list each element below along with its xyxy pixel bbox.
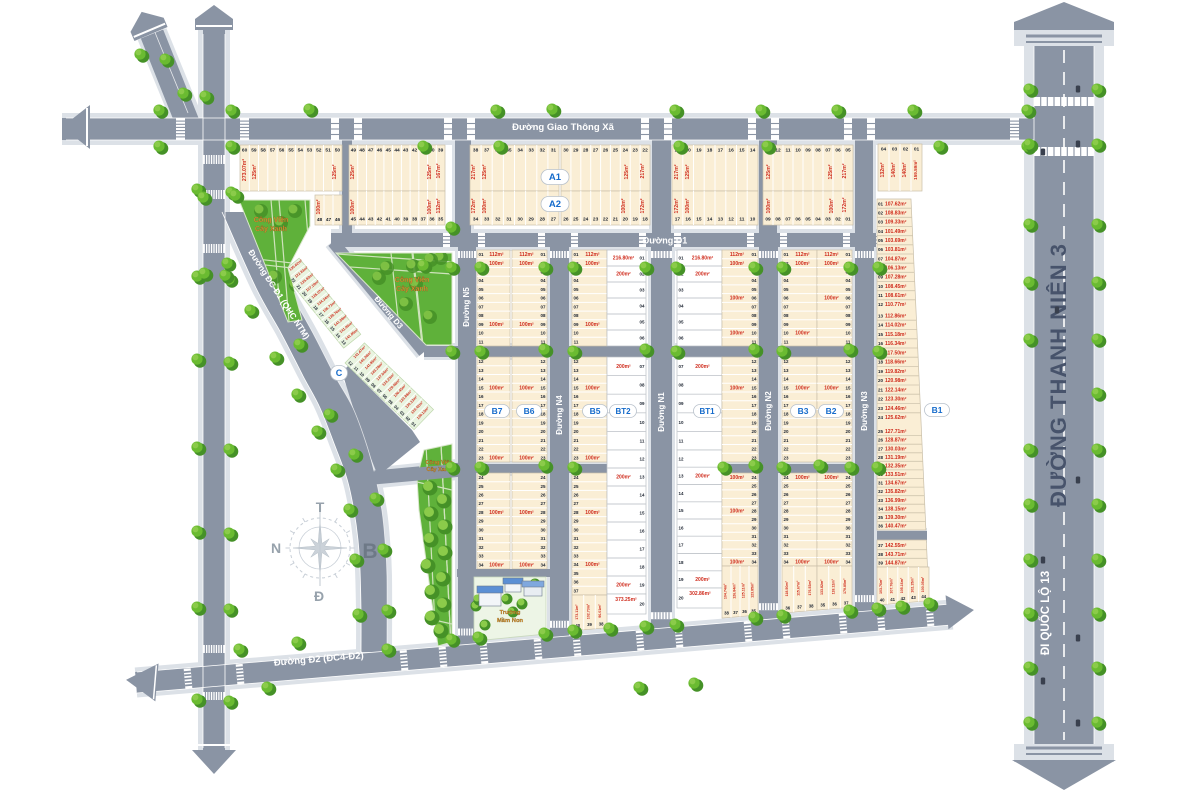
svg-text:19: 19 <box>573 420 579 425</box>
svg-text:28: 28 <box>583 148 589 154</box>
svg-text:05: 05 <box>845 148 851 154</box>
svg-text:20: 20 <box>878 378 884 383</box>
svg-text:05: 05 <box>478 287 484 292</box>
svg-text:17: 17 <box>845 403 851 408</box>
svg-text:37: 37 <box>421 217 427 223</box>
svg-text:36: 36 <box>573 580 579 585</box>
svg-text:26: 26 <box>478 493 484 498</box>
svg-text:125.62m²: 125.62m² <box>885 415 907 421</box>
svg-text:42: 42 <box>412 148 418 154</box>
svg-text:12: 12 <box>845 359 851 364</box>
svg-text:26: 26 <box>878 438 884 443</box>
svg-text:23: 23 <box>845 455 851 460</box>
svg-text:29: 29 <box>529 217 535 223</box>
svg-text:39: 39 <box>403 217 409 223</box>
svg-text:06: 06 <box>639 336 645 341</box>
svg-text:15: 15 <box>783 385 789 390</box>
svg-text:04: 04 <box>540 278 546 283</box>
svg-text:47: 47 <box>368 148 374 154</box>
svg-text:17: 17 <box>751 403 757 408</box>
svg-text:35: 35 <box>878 515 884 520</box>
svg-text:100m²: 100m² <box>489 322 504 328</box>
svg-text:10: 10 <box>573 331 579 336</box>
svg-text:08: 08 <box>573 313 579 318</box>
svg-text:BT1: BT1 <box>699 407 715 416</box>
svg-text:18: 18 <box>783 412 789 417</box>
svg-text:58: 58 <box>261 148 267 154</box>
svg-text:16: 16 <box>678 525 684 530</box>
svg-text:100m²: 100m² <box>730 385 745 391</box>
svg-text:45: 45 <box>386 148 392 154</box>
svg-text:16: 16 <box>783 394 789 399</box>
svg-text:01: 01 <box>678 256 684 261</box>
svg-text:44: 44 <box>394 148 400 154</box>
svg-text:07: 07 <box>845 304 851 309</box>
svg-text:N: N <box>271 540 281 556</box>
svg-text:200m²: 200m² <box>695 577 710 583</box>
svg-text:06: 06 <box>878 247 884 252</box>
svg-text:05: 05 <box>751 287 757 292</box>
svg-text:139.30m²: 139.30m² <box>885 515 907 521</box>
svg-text:125m²: 125m² <box>252 164 258 179</box>
svg-text:15: 15 <box>845 385 851 390</box>
svg-text:13: 13 <box>718 217 724 223</box>
svg-text:12: 12 <box>783 359 789 364</box>
svg-text:172m²: 172m² <box>471 198 477 213</box>
svg-text:09: 09 <box>751 322 757 327</box>
svg-text:24: 24 <box>878 415 884 420</box>
svg-text:07: 07 <box>878 256 884 261</box>
svg-text:33: 33 <box>540 554 546 559</box>
svg-text:15: 15 <box>751 385 757 390</box>
svg-text:200m²: 200m² <box>616 583 631 589</box>
svg-text:31: 31 <box>783 534 789 539</box>
svg-text:05: 05 <box>783 287 789 292</box>
svg-text:48: 48 <box>317 217 323 223</box>
svg-text:31: 31 <box>551 148 557 154</box>
svg-text:31: 31 <box>878 481 884 486</box>
svg-text:01: 01 <box>878 201 884 206</box>
svg-text:28: 28 <box>478 510 484 515</box>
svg-text:14: 14 <box>573 377 579 382</box>
svg-text:09: 09 <box>845 322 851 327</box>
svg-text:Cây Xanh: Cây Xanh <box>255 226 287 233</box>
svg-text:33: 33 <box>783 551 789 556</box>
svg-text:26: 26 <box>563 217 569 223</box>
svg-text:10: 10 <box>678 420 684 425</box>
svg-text:200m²: 200m² <box>616 364 631 370</box>
svg-text:32: 32 <box>478 545 484 550</box>
svg-text:21: 21 <box>478 438 484 443</box>
svg-text:17: 17 <box>783 403 789 408</box>
svg-text:46: 46 <box>335 217 341 223</box>
svg-text:18: 18 <box>878 360 884 365</box>
svg-text:54: 54 <box>298 148 304 154</box>
svg-text:50: 50 <box>335 148 341 154</box>
svg-text:100m²: 100m² <box>795 560 810 566</box>
svg-text:15: 15 <box>639 511 645 516</box>
svg-text:128.87m²: 128.87m² <box>885 438 907 444</box>
svg-text:07: 07 <box>751 304 757 309</box>
svg-text:18: 18 <box>478 412 484 417</box>
svg-text:05: 05 <box>845 287 851 292</box>
svg-text:04: 04 <box>878 229 884 234</box>
svg-text:38: 38 <box>878 552 884 557</box>
svg-text:100m²: 100m² <box>795 331 810 337</box>
svg-text:100m²: 100m² <box>585 385 600 391</box>
svg-text:06: 06 <box>573 296 579 301</box>
svg-text:32: 32 <box>540 148 546 154</box>
svg-text:45: 45 <box>351 217 357 223</box>
svg-text:125m²: 125m² <box>350 164 356 179</box>
svg-text:107.28m²: 107.28m² <box>885 275 907 281</box>
svg-text:13: 13 <box>540 368 546 373</box>
svg-text:16: 16 <box>845 394 851 399</box>
svg-text:BT2: BT2 <box>615 407 631 416</box>
svg-text:04: 04 <box>751 278 757 283</box>
svg-text:33: 33 <box>478 554 484 559</box>
svg-text:135.82m²: 135.82m² <box>885 489 907 495</box>
svg-text:08: 08 <box>775 217 781 223</box>
svg-text:24: 24 <box>478 475 484 480</box>
svg-text:01: 01 <box>639 256 645 261</box>
svg-text:105.16m²: 105.16m² <box>900 577 904 593</box>
svg-text:34: 34 <box>878 506 884 511</box>
svg-text:34: 34 <box>478 562 484 567</box>
svg-text:Công Viên: Công Viên <box>395 277 429 284</box>
svg-text:19: 19 <box>696 148 702 154</box>
svg-text:100m²: 100m² <box>829 198 835 213</box>
svg-text:26: 26 <box>540 493 546 498</box>
svg-text:59: 59 <box>251 148 257 154</box>
svg-text:136.99m²: 136.99m² <box>885 498 907 504</box>
svg-text:100m²: 100m² <box>585 510 600 516</box>
svg-text:Trường: Trường <box>500 610 521 616</box>
svg-text:130.03m²: 130.03m² <box>885 446 907 452</box>
svg-text:18: 18 <box>751 412 757 417</box>
svg-text:20: 20 <box>845 429 851 434</box>
svg-text:115.67m²: 115.67m² <box>797 580 801 596</box>
svg-text:100m²: 100m² <box>824 385 839 391</box>
svg-text:33: 33 <box>573 554 579 559</box>
svg-text:04: 04 <box>478 278 484 283</box>
svg-text:143.71m²: 143.71m² <box>885 552 907 558</box>
svg-text:125m²: 125m² <box>427 164 433 179</box>
svg-text:11: 11 <box>574 339 579 344</box>
svg-text:37: 37 <box>573 588 579 593</box>
svg-text:24: 24 <box>540 475 546 480</box>
svg-text:37: 37 <box>484 148 490 154</box>
svg-text:23: 23 <box>478 455 484 460</box>
svg-text:34: 34 <box>540 562 546 567</box>
svg-text:132.35m²: 132.35m² <box>885 463 907 469</box>
svg-text:20: 20 <box>678 596 684 601</box>
svg-text:01: 01 <box>540 252 546 257</box>
svg-text:104.87m²: 104.87m² <box>885 256 907 262</box>
svg-text:100m²: 100m² <box>519 455 534 461</box>
svg-text:29: 29 <box>573 519 579 524</box>
svg-text:16: 16 <box>751 394 757 399</box>
svg-text:20: 20 <box>783 429 789 434</box>
svg-text:132m²: 132m² <box>880 162 886 177</box>
svg-text:100m²: 100m² <box>824 475 839 481</box>
svg-text:48: 48 <box>359 148 365 154</box>
svg-text:373.25m²: 373.25m² <box>615 597 637 603</box>
svg-text:104.74m²: 104.74m² <box>724 583 728 599</box>
svg-text:100m²: 100m² <box>730 261 745 267</box>
svg-text:28: 28 <box>573 510 579 515</box>
svg-text:22: 22 <box>642 148 648 154</box>
svg-text:Đường N1: Đường N1 <box>657 392 666 432</box>
svg-text:103.81m²: 103.81m² <box>885 247 907 253</box>
svg-text:22: 22 <box>603 217 609 223</box>
svg-text:53: 53 <box>307 148 313 154</box>
svg-text:112m²: 112m² <box>824 252 839 258</box>
svg-text:34: 34 <box>751 560 757 565</box>
svg-text:12: 12 <box>478 359 484 364</box>
svg-text:34: 34 <box>517 148 523 154</box>
svg-text:30: 30 <box>751 526 757 531</box>
svg-text:114.02m²: 114.02m² <box>885 323 906 329</box>
svg-text:A2: A2 <box>549 199 561 210</box>
svg-text:119.82m²: 119.82m² <box>885 369 906 375</box>
svg-text:125m²: 125m² <box>766 164 772 179</box>
svg-text:31: 31 <box>478 536 484 541</box>
svg-text:108.83m²: 108.83m² <box>885 211 907 217</box>
svg-text:200m²: 200m² <box>616 272 631 278</box>
svg-text:16: 16 <box>728 148 734 154</box>
svg-text:20: 20 <box>639 602 645 607</box>
svg-text:08: 08 <box>815 148 821 154</box>
svg-text:22: 22 <box>878 397 884 402</box>
svg-text:13: 13 <box>639 475 645 480</box>
svg-text:20: 20 <box>573 429 579 434</box>
svg-text:T: T <box>316 499 325 515</box>
svg-text:44: 44 <box>359 217 365 223</box>
svg-text:100m²: 100m² <box>685 198 691 213</box>
svg-text:217m²: 217m² <box>842 163 848 178</box>
svg-text:27: 27 <box>751 500 757 505</box>
svg-text:102.15m²: 102.15m² <box>910 577 914 593</box>
svg-text:10: 10 <box>478 331 484 336</box>
svg-text:52: 52 <box>316 148 322 154</box>
svg-text:03: 03 <box>639 288 645 293</box>
svg-text:140.47m²: 140.47m² <box>885 524 907 530</box>
svg-text:112m²: 112m² <box>795 252 810 258</box>
svg-text:159.59m²: 159.59m² <box>913 160 918 180</box>
svg-text:125m²: 125m² <box>482 164 488 179</box>
svg-text:07: 07 <box>783 304 789 309</box>
svg-text:30: 30 <box>845 526 851 531</box>
svg-text:17: 17 <box>678 543 684 548</box>
svg-text:18: 18 <box>678 560 684 565</box>
svg-text:26: 26 <box>573 493 579 498</box>
svg-text:33: 33 <box>878 498 884 503</box>
svg-text:18: 18 <box>639 565 645 570</box>
svg-text:10: 10 <box>878 284 884 289</box>
svg-text:10: 10 <box>795 148 801 154</box>
svg-text:16: 16 <box>878 341 884 346</box>
svg-text:36: 36 <box>429 217 435 223</box>
svg-text:07: 07 <box>573 304 579 309</box>
svg-text:42: 42 <box>377 217 383 223</box>
svg-text:08: 08 <box>845 313 851 318</box>
svg-text:100m²: 100m² <box>482 198 488 213</box>
svg-text:200m²: 200m² <box>695 474 710 480</box>
svg-text:11: 11 <box>785 148 790 154</box>
svg-text:07: 07 <box>478 304 484 309</box>
svg-text:B3: B3 <box>798 406 809 416</box>
svg-text:06: 06 <box>835 148 841 154</box>
svg-text:123.85m²: 123.85m² <box>751 582 755 598</box>
svg-text:11: 11 <box>878 293 883 298</box>
svg-text:28: 28 <box>540 510 546 515</box>
svg-text:09: 09 <box>540 322 546 327</box>
svg-text:14: 14 <box>478 377 484 382</box>
svg-text:100m²: 100m² <box>824 261 839 267</box>
svg-text:14: 14 <box>678 491 684 496</box>
svg-text:29: 29 <box>540 519 546 524</box>
svg-text:07: 07 <box>639 364 645 369</box>
svg-text:24: 24 <box>751 475 757 480</box>
svg-text:B: B <box>362 540 377 563</box>
svg-text:15: 15 <box>696 217 702 223</box>
svg-text:13: 13 <box>783 368 789 373</box>
svg-text:12: 12 <box>639 457 645 462</box>
svg-text:06: 06 <box>845 296 851 301</box>
svg-text:27: 27 <box>540 501 546 506</box>
svg-text:40: 40 <box>880 598 885 603</box>
svg-text:123.30m²: 123.30m² <box>885 397 907 403</box>
svg-text:09: 09 <box>765 217 771 223</box>
svg-text:55: 55 <box>288 148 294 154</box>
svg-text:32: 32 <box>751 543 757 548</box>
svg-text:37: 37 <box>878 543 884 548</box>
svg-text:56: 56 <box>279 148 285 154</box>
svg-text:15: 15 <box>739 148 745 154</box>
svg-text:100m²: 100m² <box>519 261 534 267</box>
svg-text:112.86m²: 112.86m² <box>885 313 906 319</box>
svg-text:140m²: 140m² <box>902 162 908 177</box>
svg-text:Đường N3: Đường N3 <box>860 391 869 431</box>
svg-text:11: 11 <box>541 339 546 344</box>
svg-text:B7: B7 <box>492 406 503 416</box>
svg-text:08: 08 <box>639 383 645 388</box>
svg-text:21: 21 <box>783 438 789 443</box>
svg-text:B5: B5 <box>590 406 601 416</box>
svg-text:125m²: 125m² <box>685 164 691 179</box>
svg-text:13: 13 <box>478 368 484 373</box>
svg-text:32: 32 <box>783 543 789 548</box>
svg-text:118.66m²: 118.66m² <box>885 360 906 366</box>
svg-text:131.19m²: 131.19m² <box>885 455 907 461</box>
svg-text:36: 36 <box>785 606 790 611</box>
svg-text:125m²: 125m² <box>624 164 630 179</box>
svg-text:19: 19 <box>845 420 851 425</box>
svg-text:16: 16 <box>478 394 484 399</box>
svg-text:167m²: 167m² <box>436 163 442 178</box>
svg-text:23: 23 <box>573 455 579 460</box>
svg-text:46: 46 <box>377 148 383 154</box>
svg-text:28: 28 <box>751 509 757 514</box>
svg-text:42: 42 <box>901 596 906 601</box>
svg-text:01: 01 <box>845 217 851 223</box>
svg-text:06: 06 <box>795 217 801 223</box>
svg-text:100m²: 100m² <box>489 510 504 516</box>
svg-text:05: 05 <box>540 287 546 292</box>
svg-text:08: 08 <box>678 383 684 388</box>
svg-text:133.82m²: 133.82m² <box>820 579 824 595</box>
svg-text:133.51m²: 133.51m² <box>885 472 907 478</box>
svg-text:41: 41 <box>890 597 895 602</box>
svg-text:20: 20 <box>623 217 629 223</box>
svg-text:07: 07 <box>678 364 684 369</box>
svg-text:21: 21 <box>540 438 546 443</box>
svg-text:25: 25 <box>573 484 579 489</box>
svg-text:14: 14 <box>639 493 645 498</box>
svg-text:24: 24 <box>623 148 629 154</box>
svg-text:09: 09 <box>478 322 484 327</box>
svg-text:118.12m²: 118.12m² <box>832 578 836 594</box>
svg-text:04: 04 <box>845 278 851 283</box>
svg-text:03: 03 <box>825 217 831 223</box>
svg-text:39: 39 <box>587 622 592 627</box>
svg-text:100m²: 100m² <box>316 199 322 214</box>
svg-text:21: 21 <box>573 438 579 443</box>
svg-text:A1: A1 <box>549 172 562 183</box>
svg-text:216.80m²: 216.80m² <box>613 256 635 262</box>
svg-text:17: 17 <box>478 403 484 408</box>
svg-text:06: 06 <box>783 296 789 301</box>
svg-text:19: 19 <box>540 420 546 425</box>
svg-text:11: 11 <box>739 217 744 223</box>
svg-text:09: 09 <box>783 322 789 327</box>
svg-text:108.45m²: 108.45m² <box>885 284 907 290</box>
svg-text:47: 47 <box>326 217 332 223</box>
svg-text:100m²: 100m² <box>585 261 600 267</box>
svg-text:25: 25 <box>573 217 579 223</box>
svg-text:10: 10 <box>639 420 645 425</box>
svg-text:ĐI QUỐC LỘ 13: ĐI QUỐC LỘ 13 <box>1038 571 1052 655</box>
svg-text:07: 07 <box>825 148 831 154</box>
svg-text:15: 15 <box>478 385 484 390</box>
svg-text:02: 02 <box>878 211 884 216</box>
svg-text:176.53m²: 176.53m² <box>808 579 812 595</box>
svg-text:38: 38 <box>724 611 729 616</box>
svg-text:14: 14 <box>707 217 713 223</box>
svg-text:28: 28 <box>845 509 851 514</box>
svg-text:15: 15 <box>878 332 884 337</box>
svg-text:57: 57 <box>270 148 276 154</box>
svg-text:179.85m²: 179.85m² <box>843 578 847 594</box>
svg-text:20: 20 <box>540 429 546 434</box>
svg-text:273.07m²: 273.07m² <box>242 159 248 181</box>
svg-text:15: 15 <box>678 508 684 513</box>
svg-text:01: 01 <box>914 147 920 153</box>
svg-text:13: 13 <box>678 474 684 479</box>
svg-text:25: 25 <box>613 148 619 154</box>
svg-text:96.01m²: 96.01m² <box>598 604 602 618</box>
svg-text:22: 22 <box>540 447 546 452</box>
svg-text:138.15m²: 138.15m² <box>885 506 907 512</box>
svg-text:100m²: 100m² <box>585 455 600 461</box>
svg-text:B2: B2 <box>826 406 837 416</box>
svg-text:05: 05 <box>639 320 645 325</box>
svg-text:15: 15 <box>573 385 579 390</box>
svg-text:15: 15 <box>540 385 546 390</box>
svg-text:112m²: 112m² <box>730 252 745 258</box>
svg-text:100m²: 100m² <box>519 385 534 391</box>
